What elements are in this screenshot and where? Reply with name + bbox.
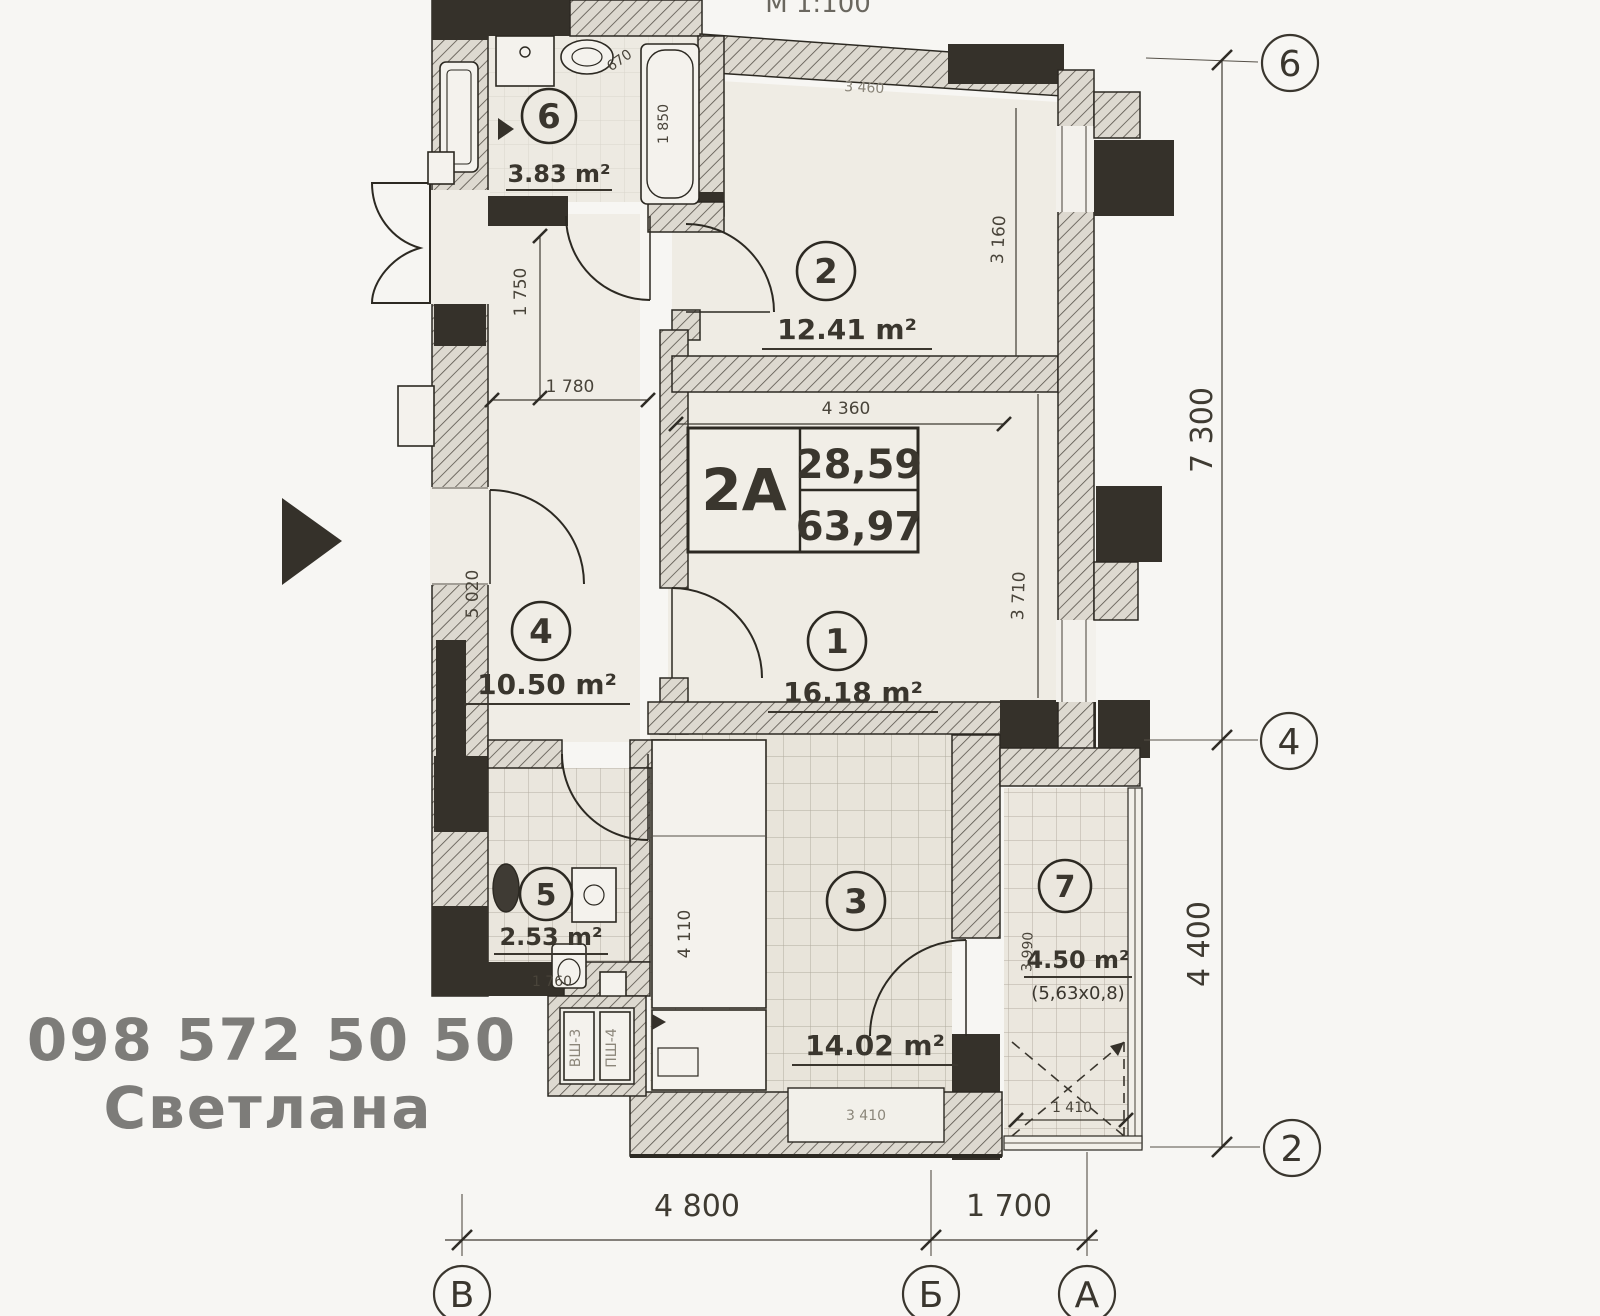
dim-3160: 3 160	[988, 215, 1011, 265]
right-wall-box-1	[1094, 140, 1174, 216]
axis-label-6: 6	[1279, 44, 1302, 85]
left-wall-box-icon	[428, 152, 454, 184]
watermark: 098 572 50 50 Светлана	[27, 1006, 517, 1142]
room2-bottom-wall	[672, 356, 1058, 392]
room-7-number: 7	[1055, 870, 1076, 905]
watermark-phone: 098 572 50 50	[27, 1006, 517, 1074]
axis-label-a: А	[1075, 1275, 1100, 1316]
bathroom-bottom-wall	[488, 196, 568, 226]
right-wall-box-2	[1096, 486, 1162, 562]
boiler-icon	[493, 864, 519, 912]
left-wall-dark-4	[434, 756, 488, 832]
right-wall-hatch-1	[1094, 92, 1140, 138]
dim-3990: 3 990	[1019, 932, 1036, 973]
axis-label-2: 2	[1281, 1129, 1304, 1170]
watermark-name: Светлана	[103, 1074, 432, 1142]
room-4-number: 4	[529, 612, 553, 652]
left-wall-niche-icon	[398, 386, 434, 446]
dim-1760: 1 760	[532, 974, 572, 990]
toilet-icon	[561, 40, 613, 74]
balcony-top-wall	[1000, 748, 1140, 786]
sink-icon	[572, 868, 616, 922]
dim-1410: 1 410	[1052, 1100, 1092, 1116]
kitchen-unit-icon	[652, 1010, 766, 1090]
room-6-area: 3.83 m²	[507, 160, 610, 188]
axis-label-b: Б	[919, 1275, 944, 1316]
axis-label-4: 4	[1278, 722, 1301, 763]
dim-7300: 7 300	[1185, 387, 1220, 473]
dim-4800: 4 800	[654, 1189, 740, 1224]
dim-3410: 3 410	[846, 1108, 886, 1124]
dim-4360: 4 360	[822, 399, 871, 419]
left-wall-dark-1	[432, 0, 488, 40]
apartment-total-area: 63,97	[796, 504, 923, 550]
left-wall-dark-2	[434, 298, 486, 346]
room-5-area: 2.53 m²	[499, 923, 602, 951]
dim-1850: 1 850	[656, 104, 672, 144]
small-cabinet-icon	[600, 972, 626, 998]
room-5-number: 5	[536, 878, 557, 913]
bathroom-right-wall	[698, 36, 724, 216]
room-6-number: 6	[537, 97, 561, 137]
room-7-area: 4.50 m²	[1026, 946, 1129, 974]
room-2-number: 2	[814, 252, 838, 292]
room-2-area: 12.41 m²	[777, 313, 917, 346]
axis-label-v: В	[450, 1275, 475, 1316]
floor-plan-svg: 6 4 2 7 300 4 400 В Б А 4 800 1 700 6 3.…	[0, 0, 1600, 1316]
shaft-label-1: ВШ-3	[568, 1029, 584, 1068]
dim-1750: 1 750	[511, 268, 531, 317]
shaft-label-2: ПШ-4	[604, 1028, 620, 1068]
top-wall-hatch	[570, 0, 702, 36]
wc-top-wall	[488, 740, 562, 768]
dim-4400: 4 400	[1182, 901, 1217, 987]
apartment-info-box: 2A 28,59 63,97	[688, 428, 922, 552]
dim-3460: 3 460	[844, 79, 885, 97]
dim-1780: 1 780	[546, 377, 595, 397]
dim-1700: 1 700	[966, 1189, 1052, 1224]
left-wall-opening-top	[430, 190, 490, 304]
washing-machine-icon	[496, 36, 554, 86]
room-1-area: 16.18 m²	[783, 676, 923, 709]
dim-5020: 5 020	[463, 570, 483, 619]
scale-note: М 1:100	[765, 0, 871, 19]
floor-plan-page: 6 4 2 7 300 4 400 В Б А 4 800 1 700 6 3.…	[0, 0, 1600, 1316]
kitchen-counter-icon	[652, 740, 766, 1008]
top-wall-dark	[488, 0, 570, 36]
entrance-arrow-icon	[282, 498, 342, 585]
left-wall-dark-3	[436, 640, 466, 758]
dim-3710: 3 710	[1008, 571, 1030, 620]
kitchen-right-wall	[952, 735, 1000, 938]
room-1-number: 1	[825, 622, 849, 662]
room-3-area: 14.02 m²	[805, 1029, 945, 1062]
right-wall-hatch-2	[1094, 562, 1138, 620]
apartment-type: 2A	[701, 456, 786, 524]
left-wall-dark-5	[432, 906, 488, 964]
wc-kitchen-partition	[630, 768, 650, 962]
apartment-living-area: 28,59	[796, 442, 923, 488]
room-4-area: 10.50 m²	[477, 668, 617, 701]
axis-grid-bottom: В Б А 4 800 1 700	[434, 1152, 1115, 1316]
top-right-wall-dark	[948, 44, 1064, 84]
dim-4110: 4 110	[675, 910, 695, 959]
double-door-icon	[372, 183, 430, 303]
room-7-note: (5,63x0,8)	[1031, 983, 1124, 1004]
room-3-number: 3	[844, 882, 868, 922]
